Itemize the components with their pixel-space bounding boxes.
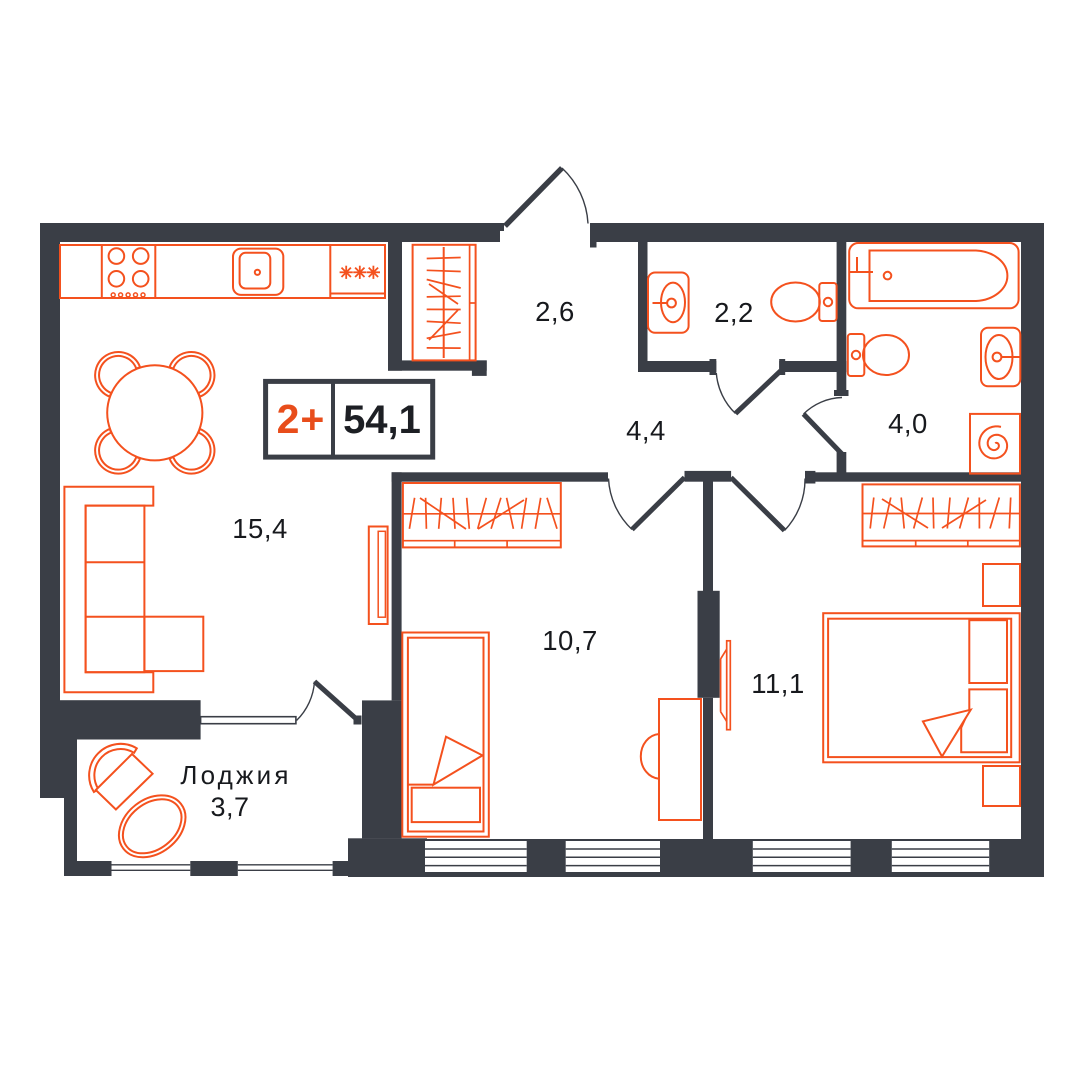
svg-text:Лоджия: Лоджия <box>180 760 291 790</box>
svg-text:11,1: 11,1 <box>751 668 804 699</box>
svg-text:2,2: 2,2 <box>714 297 754 328</box>
svg-text:10,7: 10,7 <box>542 625 598 656</box>
svg-text:4,0: 4,0 <box>888 408 928 439</box>
svg-text:2+: 2+ <box>277 396 326 442</box>
svg-text:4,4: 4,4 <box>626 415 666 446</box>
svg-text:54,1: 54,1 <box>343 398 421 442</box>
svg-text:15,4: 15,4 <box>232 513 288 544</box>
svg-text:3,7: 3,7 <box>210 792 249 822</box>
svg-text:2,6: 2,6 <box>535 296 575 327</box>
